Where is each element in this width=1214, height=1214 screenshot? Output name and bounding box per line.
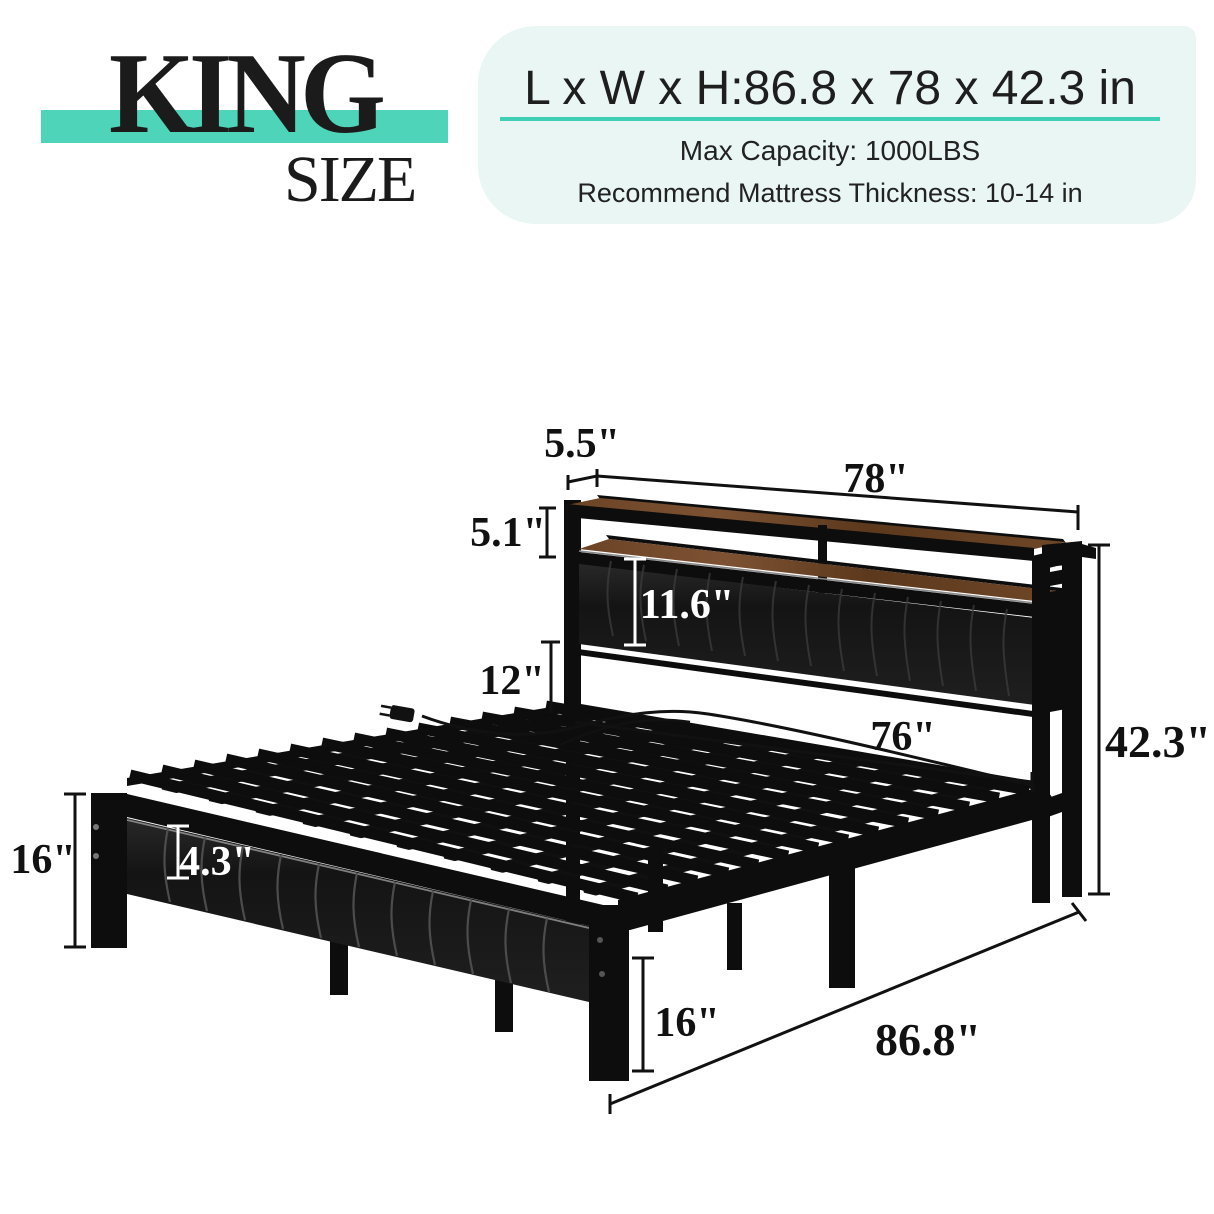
svg-text:42.3": 42.3" [1105, 716, 1211, 767]
svg-text:4.3": 4.3" [179, 839, 255, 885]
svg-text:16": 16" [10, 837, 75, 883]
svg-text:76": 76" [870, 714, 935, 760]
svg-text:12": 12" [479, 658, 544, 704]
svg-text:5.5": 5.5" [544, 421, 620, 467]
svg-text:16": 16" [654, 1000, 719, 1046]
svg-text:5.1": 5.1" [470, 510, 546, 556]
svg-text:11.6": 11.6" [640, 582, 735, 628]
svg-text:86.8": 86.8" [875, 1014, 981, 1065]
svg-text:78": 78" [843, 456, 908, 502]
